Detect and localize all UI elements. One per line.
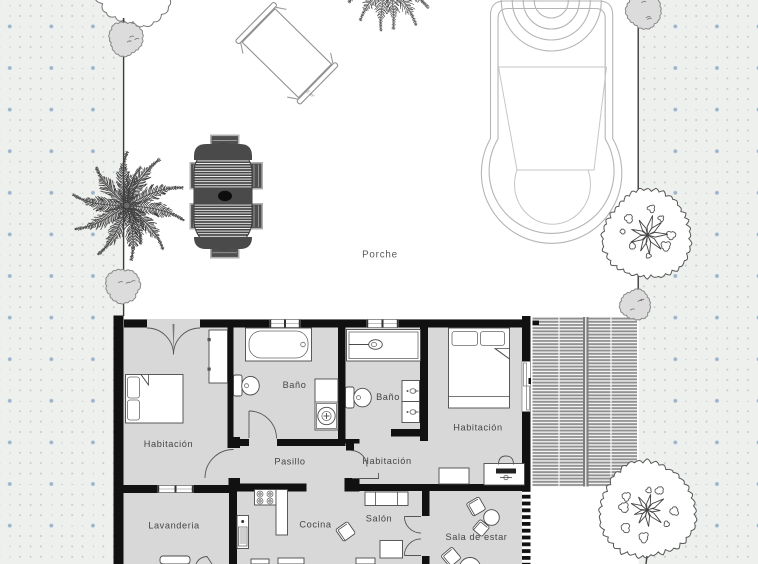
svg-text:Sala de estar: Sala de estar — [446, 532, 508, 542]
svg-text:Pasillo: Pasillo — [274, 457, 305, 467]
svg-text:Cocina: Cocina — [299, 520, 331, 530]
svg-text:Baño: Baño — [376, 392, 400, 402]
svg-text:Lavanderia: Lavanderia — [148, 521, 200, 531]
svg-text:Habitación: Habitación — [144, 439, 193, 449]
svg-text:Porche: Porche — [362, 250, 398, 261]
svg-text:Habitación: Habitación — [453, 423, 502, 433]
svg-text:Baño: Baño — [283, 380, 307, 390]
svg-text:Salón: Salón — [366, 514, 393, 524]
svg-text:Habitación: Habitación — [362, 456, 411, 466]
